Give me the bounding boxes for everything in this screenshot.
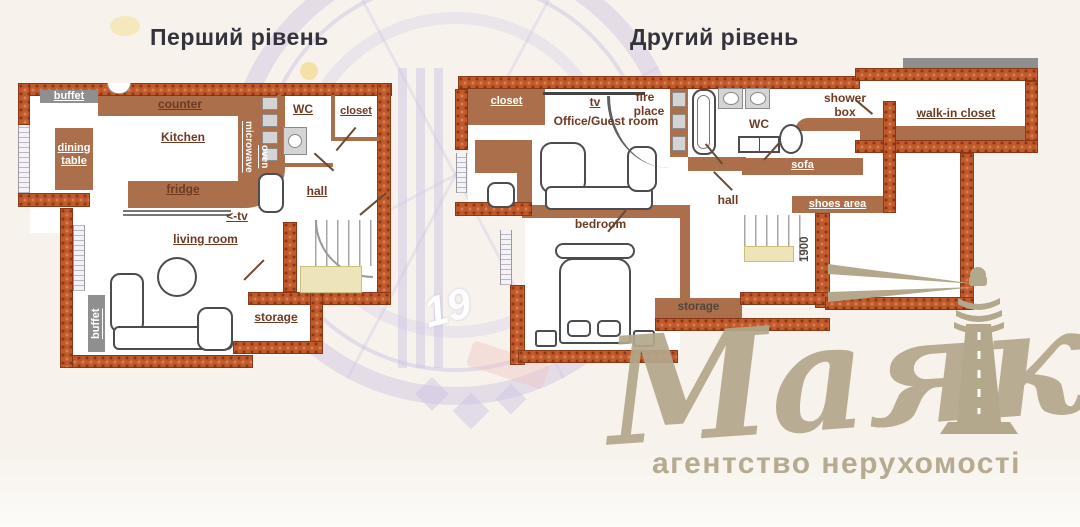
window <box>18 125 30 193</box>
fireplace-label-line2: place <box>623 105 675 118</box>
sink <box>745 88 770 109</box>
buffet-top-label: buffet <box>40 90 98 103</box>
bed-pillow <box>567 320 591 337</box>
level2-title: Другий рівень <box>630 24 799 51</box>
partition <box>331 137 379 141</box>
sink <box>718 88 743 109</box>
floorplan-canvas: 19 Перший рівень Другий рівень <box>0 0 1080 527</box>
wall <box>455 89 468 150</box>
sink-basin <box>288 134 302 148</box>
toilet <box>779 124 803 154</box>
level2-plan: closet tv Office/Guest room fire place W… <box>455 58 1040 370</box>
wall <box>18 83 30 125</box>
chimney-vent <box>672 136 686 151</box>
window <box>500 230 512 285</box>
closet-label: closet <box>468 95 545 108</box>
wall <box>458 76 860 89</box>
hall-label: hall <box>295 185 339 198</box>
bed-pillow <box>597 320 621 337</box>
window <box>456 153 467 193</box>
wc-label: WC <box>741 118 777 131</box>
sofa-label: sofa <box>742 159 863 172</box>
sofa-right <box>197 307 233 351</box>
shower-label-line1: shower <box>805 92 885 105</box>
tv-label: tv <box>573 96 617 109</box>
emblem-accent-dot <box>110 16 140 36</box>
coffee-table <box>157 257 197 297</box>
fireplace-label-line1: fire <box>619 91 671 104</box>
shelf-unit <box>262 97 278 110</box>
sink-basin <box>723 92 739 105</box>
sofa-left <box>110 273 144 333</box>
microwave-label: microwave <box>239 115 254 179</box>
wall <box>283 222 297 292</box>
closet-label: closet <box>333 105 379 117</box>
wall <box>855 68 1038 81</box>
tv-arrow-label: <-tv <box>211 210 263 223</box>
wall <box>825 297 974 310</box>
wall <box>518 350 678 363</box>
nightstand <box>535 330 557 347</box>
level1-title: Перший рівень <box>150 24 329 51</box>
floor <box>830 153 975 310</box>
wall <box>18 193 90 207</box>
wall <box>655 318 830 331</box>
buffet-side-label: buffet <box>88 295 105 352</box>
bedroom-label: bedroom <box>548 218 653 231</box>
stairs-landing <box>300 266 362 293</box>
bathtub-basin <box>697 95 710 149</box>
kitchen-label: Kitchen <box>128 131 238 144</box>
stairs-landing <box>744 246 794 262</box>
oven-label: oven <box>255 129 270 185</box>
bed-headboard <box>555 243 635 259</box>
buffet-top: buffet <box>40 90 98 103</box>
roof-strip <box>903 58 1038 68</box>
shoes-area-label: shoes area <box>792 198 883 211</box>
walk-in-closet-label: walk-in closet <box>883 107 1029 120</box>
stairs-height-label: 1900 <box>799 224 817 274</box>
wall <box>740 292 830 305</box>
window <box>73 225 85 291</box>
wardrobe-block <box>517 140 532 203</box>
nightstand <box>633 330 655 347</box>
wall <box>960 153 974 310</box>
shower-label-line2: box <box>805 106 885 119</box>
wall <box>60 355 253 368</box>
partition <box>331 95 335 141</box>
bathtub <box>692 89 716 155</box>
shower-wall <box>795 118 885 131</box>
storage-label: storage <box>243 311 309 324</box>
fridge-label: fridge <box>133 183 233 196</box>
wall <box>233 341 323 354</box>
sink-basin <box>750 92 766 105</box>
storage-label: storage <box>655 301 742 313</box>
level1-plan: buffet buffet dining table counter Kitch… <box>15 83 395 375</box>
wall <box>60 208 73 368</box>
dining-table-label: dining table <box>55 128 93 168</box>
partition <box>680 205 690 301</box>
shelf-unit <box>262 114 278 127</box>
cabinet-divider <box>759 138 760 151</box>
wc-label: WC <box>281 103 325 116</box>
hall-label: hall <box>701 194 755 207</box>
kitchen-island <box>128 116 238 181</box>
dining-table: dining table <box>55 128 93 190</box>
counter-label: counter <box>125 98 235 111</box>
emblem-accent-dot <box>300 62 318 80</box>
office-armchair <box>487 182 515 208</box>
wc-sink <box>283 127 307 155</box>
living-room-label: living room <box>153 233 258 246</box>
buffet-side: buffet <box>88 295 105 352</box>
